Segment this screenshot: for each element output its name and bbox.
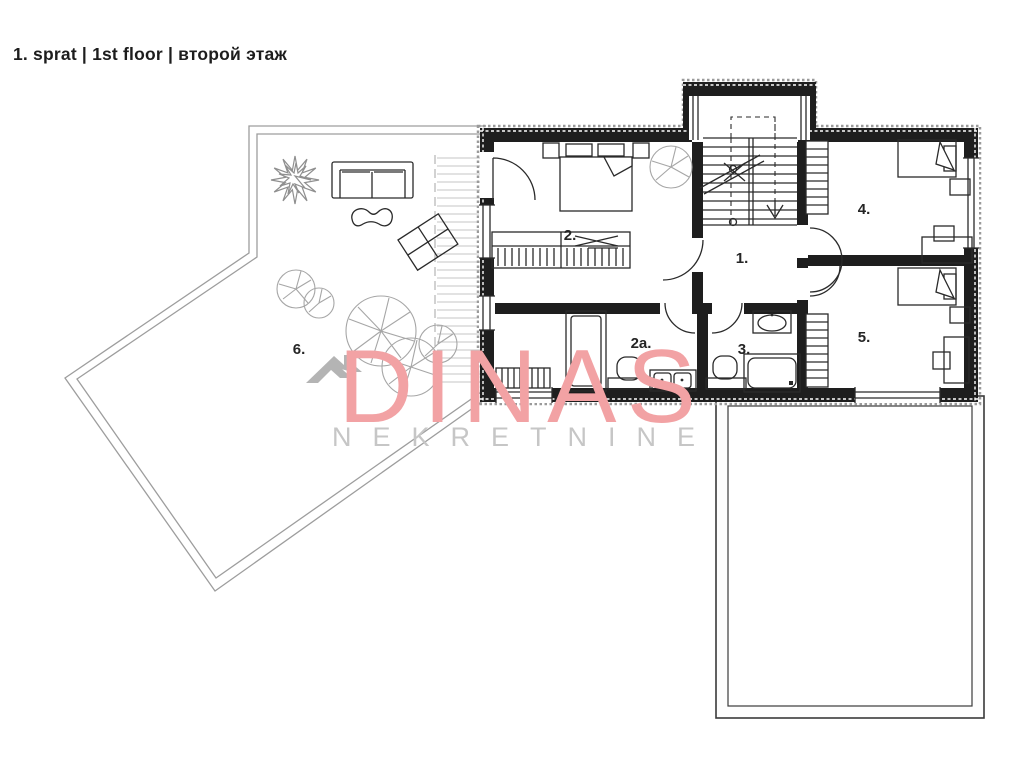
room-label-3: 3. (738, 341, 751, 358)
lower-roof-outline (716, 396, 984, 718)
window-bath2a-left (479, 296, 495, 330)
window-vestibule-right (797, 96, 810, 140)
shelf (806, 141, 828, 214)
watermark: DINAS NEKRETNINE (306, 329, 716, 452)
floor-plan-page: 1. sprat | 1st floor | второй этаж (0, 0, 1036, 777)
plant-icon (271, 156, 319, 204)
room-label-2: 2. (564, 227, 577, 244)
shelf (806, 314, 828, 387)
watermark-tagline: NEKRETNINE (332, 422, 716, 452)
window-vestibule-left (689, 96, 702, 140)
coffee-table (352, 209, 393, 226)
floor-title: 1. sprat | 1st floor | второй этаж (13, 44, 287, 65)
room-label-6: 6. (293, 341, 306, 358)
room-label-1: 1. (736, 250, 749, 267)
sofa (332, 162, 413, 198)
window-room4-right (963, 158, 979, 248)
window-room5-bottom (855, 387, 940, 403)
floor-plan-canvas: 6. (0, 0, 1036, 777)
room-label-4: 4. (858, 201, 871, 218)
room-label-5: 5. (858, 329, 871, 346)
